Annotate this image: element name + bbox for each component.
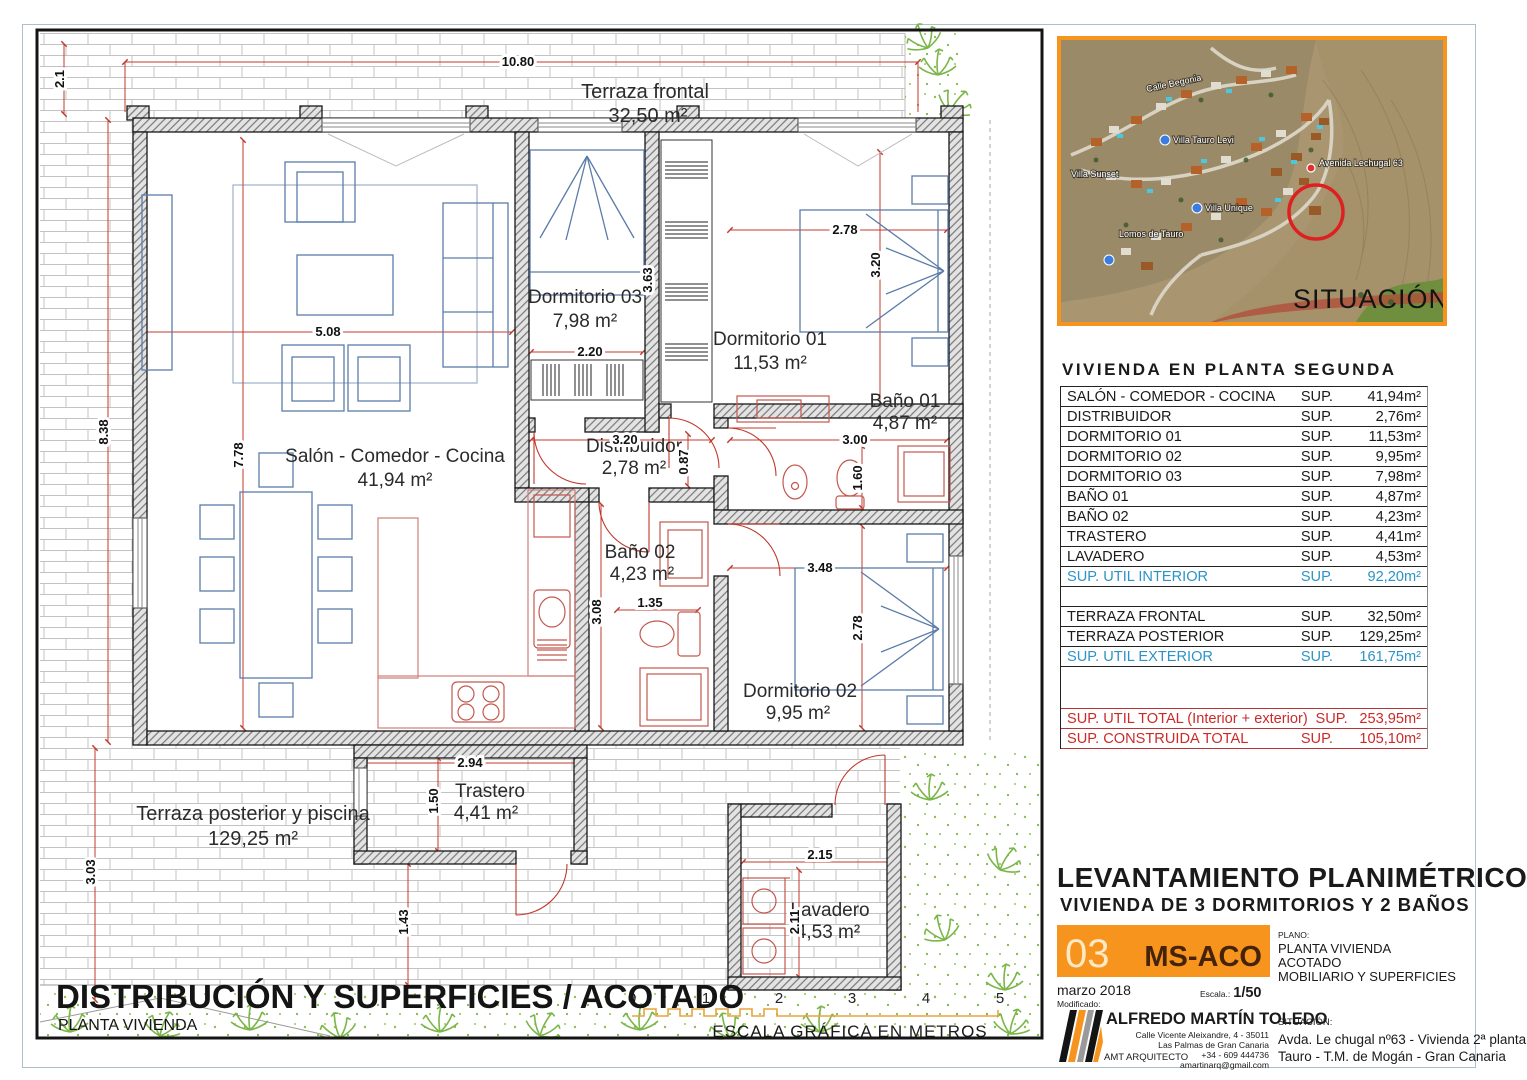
wardrobes: [531, 140, 712, 402]
area-terraza-posterior: 129,25 m²: [208, 828, 298, 850]
site-pin: [1307, 164, 1315, 172]
sheet-date: marzo 2018: [1057, 982, 1131, 998]
label-dorm01: Dormitorio 01: [713, 329, 827, 350]
plan-title: DISTRIBUCIÓN Y SUPERFICIES / ACOTADO: [56, 978, 744, 1015]
svg-text:2.78: 2.78: [832, 222, 857, 237]
surface-table: VIVIENDA EN PLANTA SEGUNDA SALÓN - COMED…: [1060, 360, 1428, 749]
svg-text:3.03: 3.03: [83, 859, 98, 884]
table-row-sup-construida-total: SUP. CONSTRUIDA TOTALSUP.105,10m²: [1061, 729, 1427, 749]
plano-line: ACOTADO: [1278, 956, 1456, 970]
table-row: TERRAZA POSTERIORSUP.129,25m²: [1061, 627, 1427, 647]
table-row: SALÓN - COMEDOR - COCINASUP.41,94m²: [1061, 387, 1427, 407]
label-terraza-posterior: Terraza posterior y piscina: [136, 803, 370, 825]
architect-address: Calle Vicente Aleixandre, 4 - 35011 Las …: [1106, 1030, 1269, 1070]
kitchen-fixtures: [378, 490, 575, 728]
svg-text:Villa Tauro Levi: Villa Tauro Levi: [1173, 135, 1234, 145]
table-title: VIVIENDA EN PLANTA SEGUNDA: [1062, 360, 1428, 380]
svg-text:2.94: 2.94: [457, 755, 483, 770]
plano-line: PLANTA VIVIENDA: [1278, 942, 1456, 956]
svg-text:Villa Unique: Villa Unique: [1205, 203, 1253, 213]
svg-text:2.78: 2.78: [850, 615, 865, 640]
sheet-code: MS-ACO: [1144, 937, 1262, 977]
situation-block: SITUACIÓN: Avda. Le chugal nº63 - Vivien…: [1278, 1014, 1526, 1065]
situation-map: Villa Tauro Levi Villa Unique Avenida Le…: [1057, 36, 1447, 326]
area-lavadero: 4,53 m²: [796, 922, 860, 943]
plano-block: PLANO: PLANTA VIVIENDA ACOTADO MOBILIARI…: [1278, 928, 1456, 984]
situacion-line: Avda. Le chugal nº63 - Vivienda 2ª plant…: [1278, 1031, 1526, 1048]
area-dorm01: 11,53 m²: [733, 353, 807, 374]
label-bano02: Baño 02: [605, 542, 676, 563]
svg-text:3.48: 3.48: [807, 560, 832, 575]
svg-text:2: 2: [775, 990, 783, 1007]
table-row: BAÑO 02SUP.4,23m²: [1061, 507, 1427, 527]
svg-text:7.78: 7.78: [231, 442, 246, 467]
svg-text:2.15: 2.15: [807, 847, 832, 862]
living-room-furniture: [142, 162, 508, 717]
label-terraza-frontal: Terraza frontal: [581, 81, 709, 103]
table-row: DISTRIBUIDORSUP.2,76m²: [1061, 407, 1427, 427]
architect-logo: [1057, 1008, 1103, 1062]
situacion-label: SITUACIÓN:: [1278, 1014, 1526, 1031]
svg-text:Avenida Lechugal 63: Avenida Lechugal 63: [1319, 158, 1403, 168]
table-row: DORMITORIO 03SUP.7,98m²: [1061, 467, 1427, 487]
svg-text:3.20: 3.20: [612, 432, 637, 447]
table-spacer: [1061, 587, 1427, 607]
svg-text:5: 5: [996, 990, 1004, 1007]
area-distribuidor: 2,78 m²: [602, 458, 666, 479]
area-salon: 41,94 m²: [358, 470, 433, 491]
svg-text:2.20: 2.20: [577, 344, 602, 359]
table-row: DORMITORIO 02SUP.9,95m²: [1061, 447, 1427, 467]
sheet-number-box: 03 MS-ACO: [1057, 925, 1270, 977]
table-row-sup-util-total: SUP. UTIL TOTAL (Interior + exterior)SUP…: [1061, 709, 1427, 729]
svg-text:1.50: 1.50: [426, 788, 441, 813]
map-caption: SITUACIÓN: [1293, 283, 1443, 314]
terrace-paving: [40, 33, 905, 985]
area-dorm03: 7,98 m²: [553, 311, 617, 332]
area-dorm02: 9,95 m²: [766, 703, 830, 724]
area-bano01: 4,87 m²: [873, 413, 937, 434]
scale-value: Escala.:1/50: [1200, 985, 1261, 1001]
svg-text:Lomos de Tauro: Lomos de Tauro: [1119, 229, 1183, 239]
svg-text:2.11: 2.11: [787, 910, 802, 935]
area-bano02: 4,23 m²: [610, 564, 674, 585]
address-line: Las Palmas de Gran Canaria: [1106, 1040, 1269, 1050]
svg-text:3.00: 3.00: [842, 432, 867, 447]
svg-text:3: 3: [848, 990, 856, 1007]
situacion-line: Tauro - T.M. de Mogán - Gran Canaria: [1278, 1048, 1526, 1065]
label-trastero: Trastero: [455, 781, 525, 802]
table-row: BAÑO 01SUP.4,87m²: [1061, 487, 1427, 507]
label-salon: Salón - Comedor - Cocina: [285, 446, 505, 467]
table-row: DORMITORIO 01SUP.11,53m²: [1061, 427, 1427, 447]
plan-subtitle: PLANTA VIVIENDA: [58, 1017, 198, 1034]
svg-text:3.20: 3.20: [868, 252, 883, 277]
svg-text:2.1: 2.1: [52, 70, 67, 88]
table-row: TRASTEROSUP.4,41m²: [1061, 527, 1427, 547]
area-terraza-frontal: 32,50 m²: [609, 105, 688, 127]
table-row: TERRAZA FRONTALSUP.32,50m²: [1061, 607, 1427, 627]
sheet-number: 03: [1065, 931, 1110, 977]
scale-number: 1/50: [1233, 985, 1261, 1001]
table-row-sup-util-interior: SUP. UTIL INTERIORSUP.92,20m²: [1061, 567, 1427, 587]
svg-text:3.63: 3.63: [640, 267, 655, 292]
svg-text:5.08: 5.08: [315, 324, 340, 339]
table-row-sup-util-exterior: SUP. UTIL EXTERIORSUP.161,75m²: [1061, 647, 1427, 667]
table-spacer: [1061, 667, 1427, 709]
svg-text:1.35: 1.35: [637, 595, 662, 610]
table-row: LAVADEROSUP.4,53m²: [1061, 547, 1427, 567]
drawing-subtitle: VIVIENDA DE 3 DORMITORIOS Y 2 BAÑOS: [1060, 894, 1470, 916]
architect-role: AMT ARQUITECTO: [1104, 1052, 1188, 1063]
label-dorm03: Dormitorio 03: [528, 287, 642, 308]
label-lavadero: Lavadero: [790, 900, 869, 921]
plano-label: PLANO:: [1278, 928, 1456, 942]
svg-text:10.80: 10.80: [502, 54, 535, 69]
plano-line: MOBILIARIO Y SUPERFICIES: [1278, 970, 1456, 984]
scale-label: Escala.:: [1200, 989, 1230, 999]
label-dorm02: Dormitorio 02: [743, 681, 857, 702]
svg-text:3.08: 3.08: [589, 599, 604, 624]
drawing-title: LEVANTAMIENTO PLANIMÉTRICO: [1057, 862, 1527, 894]
svg-text:Villa Sunset: Villa Sunset: [1071, 169, 1119, 179]
address-line: Calle Vicente Aleixandre, 4 - 35011: [1106, 1030, 1269, 1040]
svg-text:1.43: 1.43: [396, 909, 411, 934]
area-trastero: 4,41 m²: [454, 803, 518, 824]
satellite-image: Villa Tauro Levi Villa Unique Avenida Le…: [1061, 40, 1443, 322]
svg-text:8.38: 8.38: [96, 419, 111, 444]
label-bano01: Baño 01: [870, 391, 941, 412]
svg-text:1.60: 1.60: [850, 465, 865, 490]
svg-text:0.87: 0.87: [676, 449, 691, 474]
svg-text:4: 4: [922, 990, 930, 1007]
